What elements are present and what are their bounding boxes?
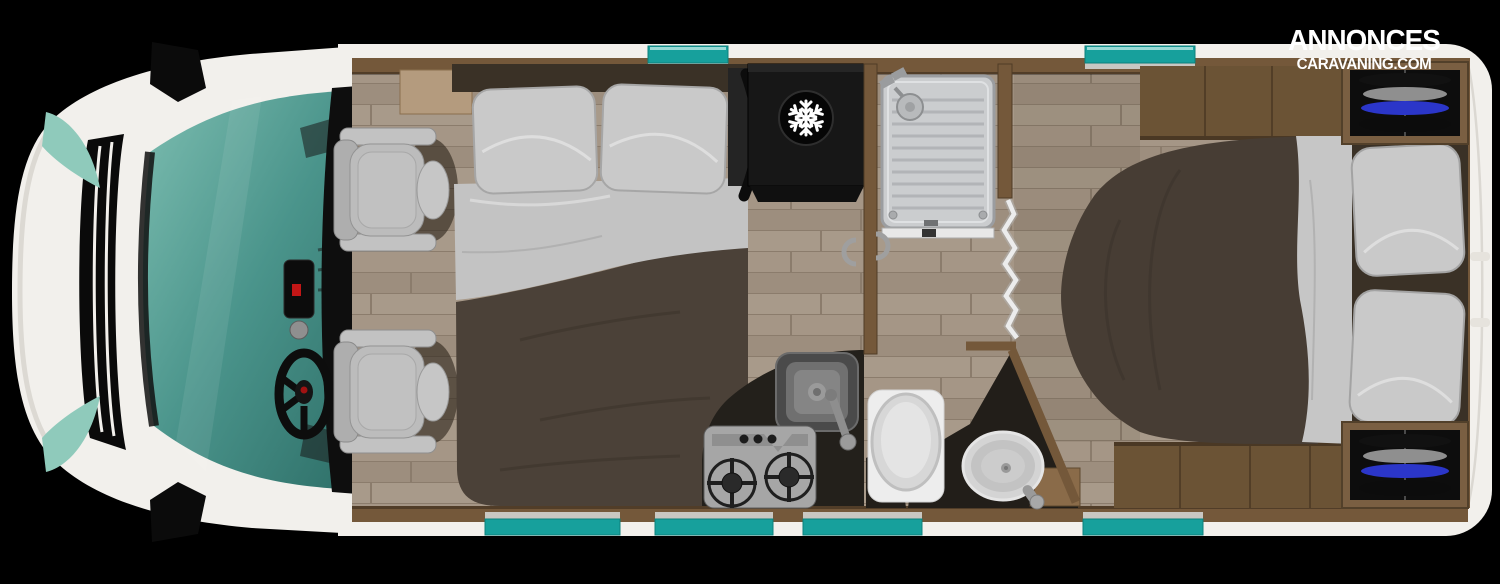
site-logo: ANNONCES CARAVANING.COM	[1282, 27, 1446, 73]
rear-trim	[1470, 318, 1490, 327]
passenger-seat	[334, 128, 458, 251]
kitchen-bath-wall	[864, 64, 877, 354]
refrigerator-drawer	[750, 186, 864, 202]
site-logo-line2: CARAVANING.COM	[1284, 57, 1445, 73]
garment	[1363, 87, 1447, 101]
toilet	[868, 390, 944, 502]
garment	[1361, 101, 1449, 115]
bed-platform-top	[1140, 66, 1342, 140]
rear-trim	[1470, 252, 1490, 261]
garment	[1359, 480, 1451, 496]
bed-platform-bottom	[1114, 442, 1342, 508]
shower-door-rail	[882, 228, 994, 238]
rear-bed-pillow-top	[1351, 143, 1466, 276]
floorplan-image: ANNONCES CARAVANING.COM	[0, 0, 1500, 584]
garment	[1363, 449, 1447, 463]
garment	[1361, 464, 1449, 478]
front-bed-pillow-left	[472, 86, 598, 194]
floorplan-svg	[0, 0, 1500, 584]
shower-wall	[998, 64, 1012, 198]
window-top-2	[1085, 46, 1195, 69]
driver-seat	[334, 330, 458, 453]
gear-knob	[290, 321, 308, 339]
console-indicator	[292, 284, 301, 296]
front-bed-pillow-right	[600, 84, 728, 194]
wardrobe-top	[1342, 62, 1468, 144]
window-bottom-3	[803, 512, 922, 535]
shower	[879, 67, 994, 238]
gas-stove	[704, 426, 816, 508]
shower-drain	[924, 220, 938, 226]
rear-bed-pillow-bottom	[1349, 289, 1466, 427]
wardrobe-bottom	[1342, 422, 1468, 508]
driver-cab	[12, 42, 360, 542]
window-bottom-4	[1083, 512, 1203, 535]
site-logo-line1: ANNONCES	[1285, 27, 1442, 56]
garment	[1359, 116, 1451, 132]
window-bottom-1	[485, 512, 620, 535]
garment	[1359, 434, 1451, 448]
media-fridge-column	[728, 64, 864, 202]
garment	[1359, 73, 1451, 87]
window-bottom-2	[655, 512, 773, 535]
